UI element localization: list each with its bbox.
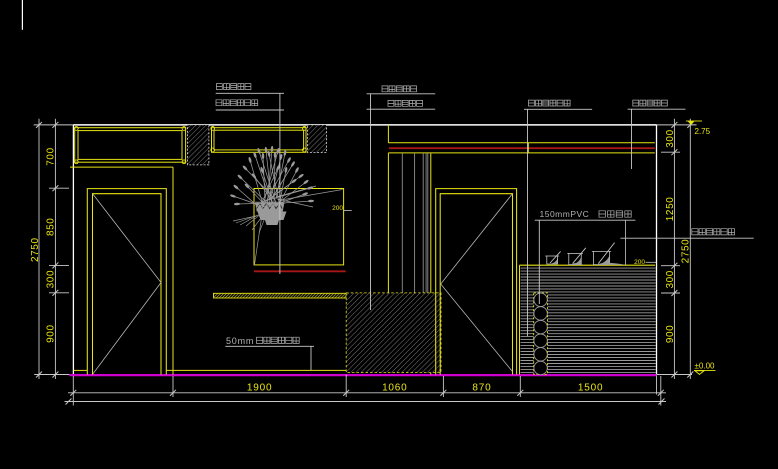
svg-text:150mmPVC: 150mmPVC (540, 209, 590, 219)
svg-text:200: 200 (634, 259, 645, 266)
svg-text:1060: 1060 (382, 383, 407, 394)
svg-text:300: 300 (46, 270, 57, 289)
svg-text:2750: 2750 (30, 237, 41, 262)
svg-text:850: 850 (46, 218, 57, 237)
svg-text:1500: 1500 (578, 383, 603, 394)
svg-text:2.75: 2.75 (695, 127, 711, 136)
svg-text:900: 900 (46, 324, 57, 343)
svg-text:700: 700 (46, 147, 57, 166)
svg-text:1900: 1900 (247, 383, 272, 394)
svg-text:300: 300 (665, 129, 676, 148)
svg-text:±0.00: ±0.00 (695, 362, 716, 371)
svg-text:900: 900 (665, 325, 676, 344)
svg-text:870: 870 (472, 383, 491, 394)
svg-text:1250: 1250 (665, 197, 676, 222)
svg-text:2750: 2750 (681, 239, 692, 264)
svg-text:300: 300 (665, 270, 676, 289)
svg-text:50mm: 50mm (226, 336, 254, 346)
svg-text:200: 200 (332, 205, 343, 212)
